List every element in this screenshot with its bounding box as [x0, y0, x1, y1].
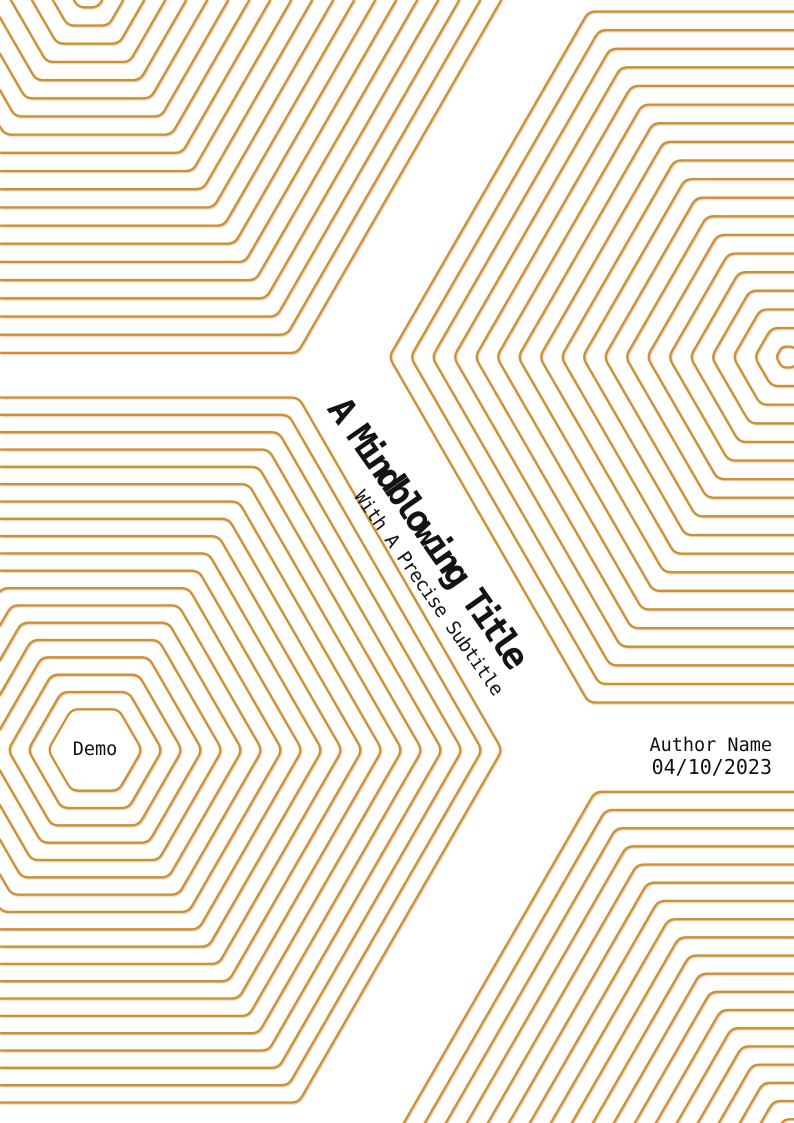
hexagon-ring — [421, 810, 794, 1123]
hexagon-ring — [49, 0, 128, 26]
hexagon-ring — [0, 0, 400, 262]
hexagon-ring — [0, 0, 295, 171]
hexagon-ring — [777, 1119, 794, 1123]
hexagon-ring — [756, 328, 794, 386]
hexagon-ring — [694, 1046, 794, 1123]
hexagon-ring — [498, 105, 794, 610]
hexagon-ring — [584, 179, 794, 535]
demo-badge: Demo — [45, 739, 145, 760]
hexagon-ring — [627, 216, 794, 497]
hexagon-ring — [568, 937, 794, 1123]
hexagon-ring — [777, 347, 794, 368]
hexagon-ring — [673, 1028, 794, 1123]
hexagon-ring — [0, 0, 463, 317]
hexagon-cluster-top-left — [0, 0, 505, 353]
hexagon-ring — [652, 1010, 794, 1123]
hexagon-ring — [0, 0, 358, 226]
hexagon-ring — [400, 792, 794, 1123]
hexagon-ring — [477, 86, 794, 628]
hexagon-cluster-bottom-right — [400, 792, 794, 1123]
hexagon-ring — [520, 123, 794, 591]
hexagon-ring — [610, 974, 794, 1123]
hexagon-ring — [0, 0, 274, 153]
hexagon-ring — [7, 0, 170, 62]
author-block: Author Name 04/10/2023 — [649, 735, 772, 778]
hexagon-ring — [70, 0, 107, 7]
hexagon-ring — [0, 0, 190, 80]
hexagon-ring — [735, 309, 794, 404]
publication-date: 04/10/2023 — [649, 756, 772, 778]
author-name: Author Name — [649, 735, 772, 756]
hexagon-ring — [631, 992, 794, 1123]
hexagon-ring — [606, 198, 794, 517]
hexagon-ring — [713, 291, 794, 424]
title-page: A Mindblowing Title With A Precise Subti… — [0, 0, 794, 1123]
hexagon-ring — [692, 272, 794, 442]
